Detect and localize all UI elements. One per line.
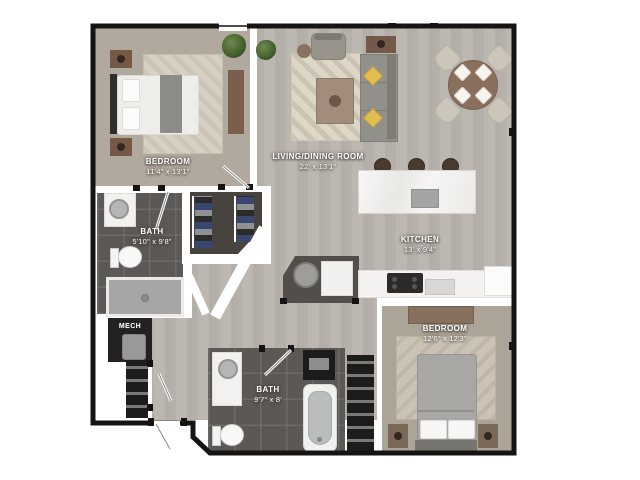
walls-and-doors-overlay: [0, 0, 640, 480]
room-name: BATH: [140, 227, 163, 236]
room-label-bath-2: BATH 9'7" x 8': [254, 385, 282, 405]
room-dims: 9'7" x 8': [254, 395, 282, 405]
room-label-bedroom-2: BEDROOM 12'6" x 12'3": [423, 324, 468, 344]
room-dims: 5'10" x 9'8": [132, 237, 171, 247]
room-name: BATH: [256, 385, 279, 394]
room-name: KITCHEN: [401, 235, 439, 244]
room-name: BEDROOM: [423, 324, 468, 333]
room-label-bath-1: BATH 5'10" x 9'8": [132, 227, 171, 247]
room-dims: 11'4" x 13'1": [146, 167, 191, 177]
room-label-mech: MECH: [119, 322, 141, 331]
room-label-bedroom-1: BEDROOM 11'4" x 13'1": [146, 157, 191, 177]
door-jambs: [133, 23, 514, 426]
room-dims: 12'6" x 12'3": [423, 334, 468, 344]
room-dims: 13' x 9'4": [401, 245, 439, 255]
room-name: BEDROOM: [146, 157, 191, 166]
room-label-kitchen: KITCHEN 13' x 9'4": [401, 235, 439, 255]
room-name: MECH: [119, 323, 141, 330]
room-name: LIVING/DINING ROOM: [272, 152, 363, 161]
room-dims: 22' x 13'1": [272, 162, 363, 172]
room-label-living-dining: LIVING/DINING ROOM 22' x 13'1": [272, 152, 363, 172]
floor-plan: BEDROOM 11'4" x 13'1" LIVING/DINING ROOM…: [0, 0, 640, 480]
